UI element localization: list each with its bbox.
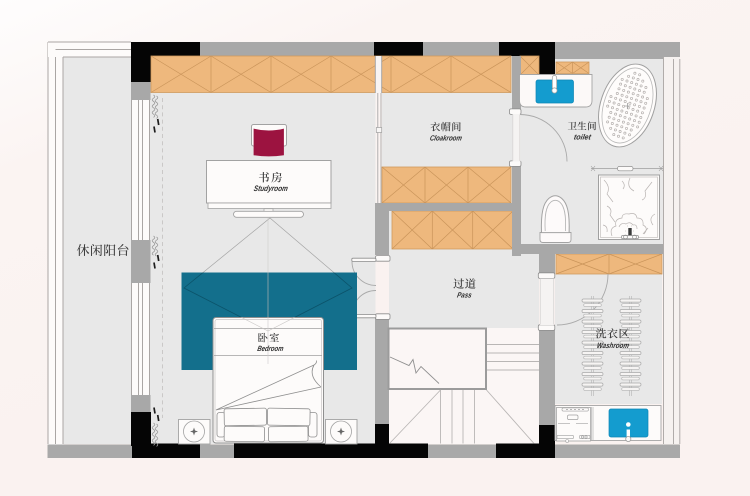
svg-text:toilet: toilet xyxy=(573,133,592,142)
svg-text:Pass: Pass xyxy=(456,290,472,299)
svg-text:Studyroom: Studyroom xyxy=(253,184,289,193)
svg-text:Bedroom: Bedroom xyxy=(257,344,285,353)
svg-text:Cloakroom: Cloakroom xyxy=(429,133,463,142)
svg-text:Washroom: Washroom xyxy=(596,341,630,350)
